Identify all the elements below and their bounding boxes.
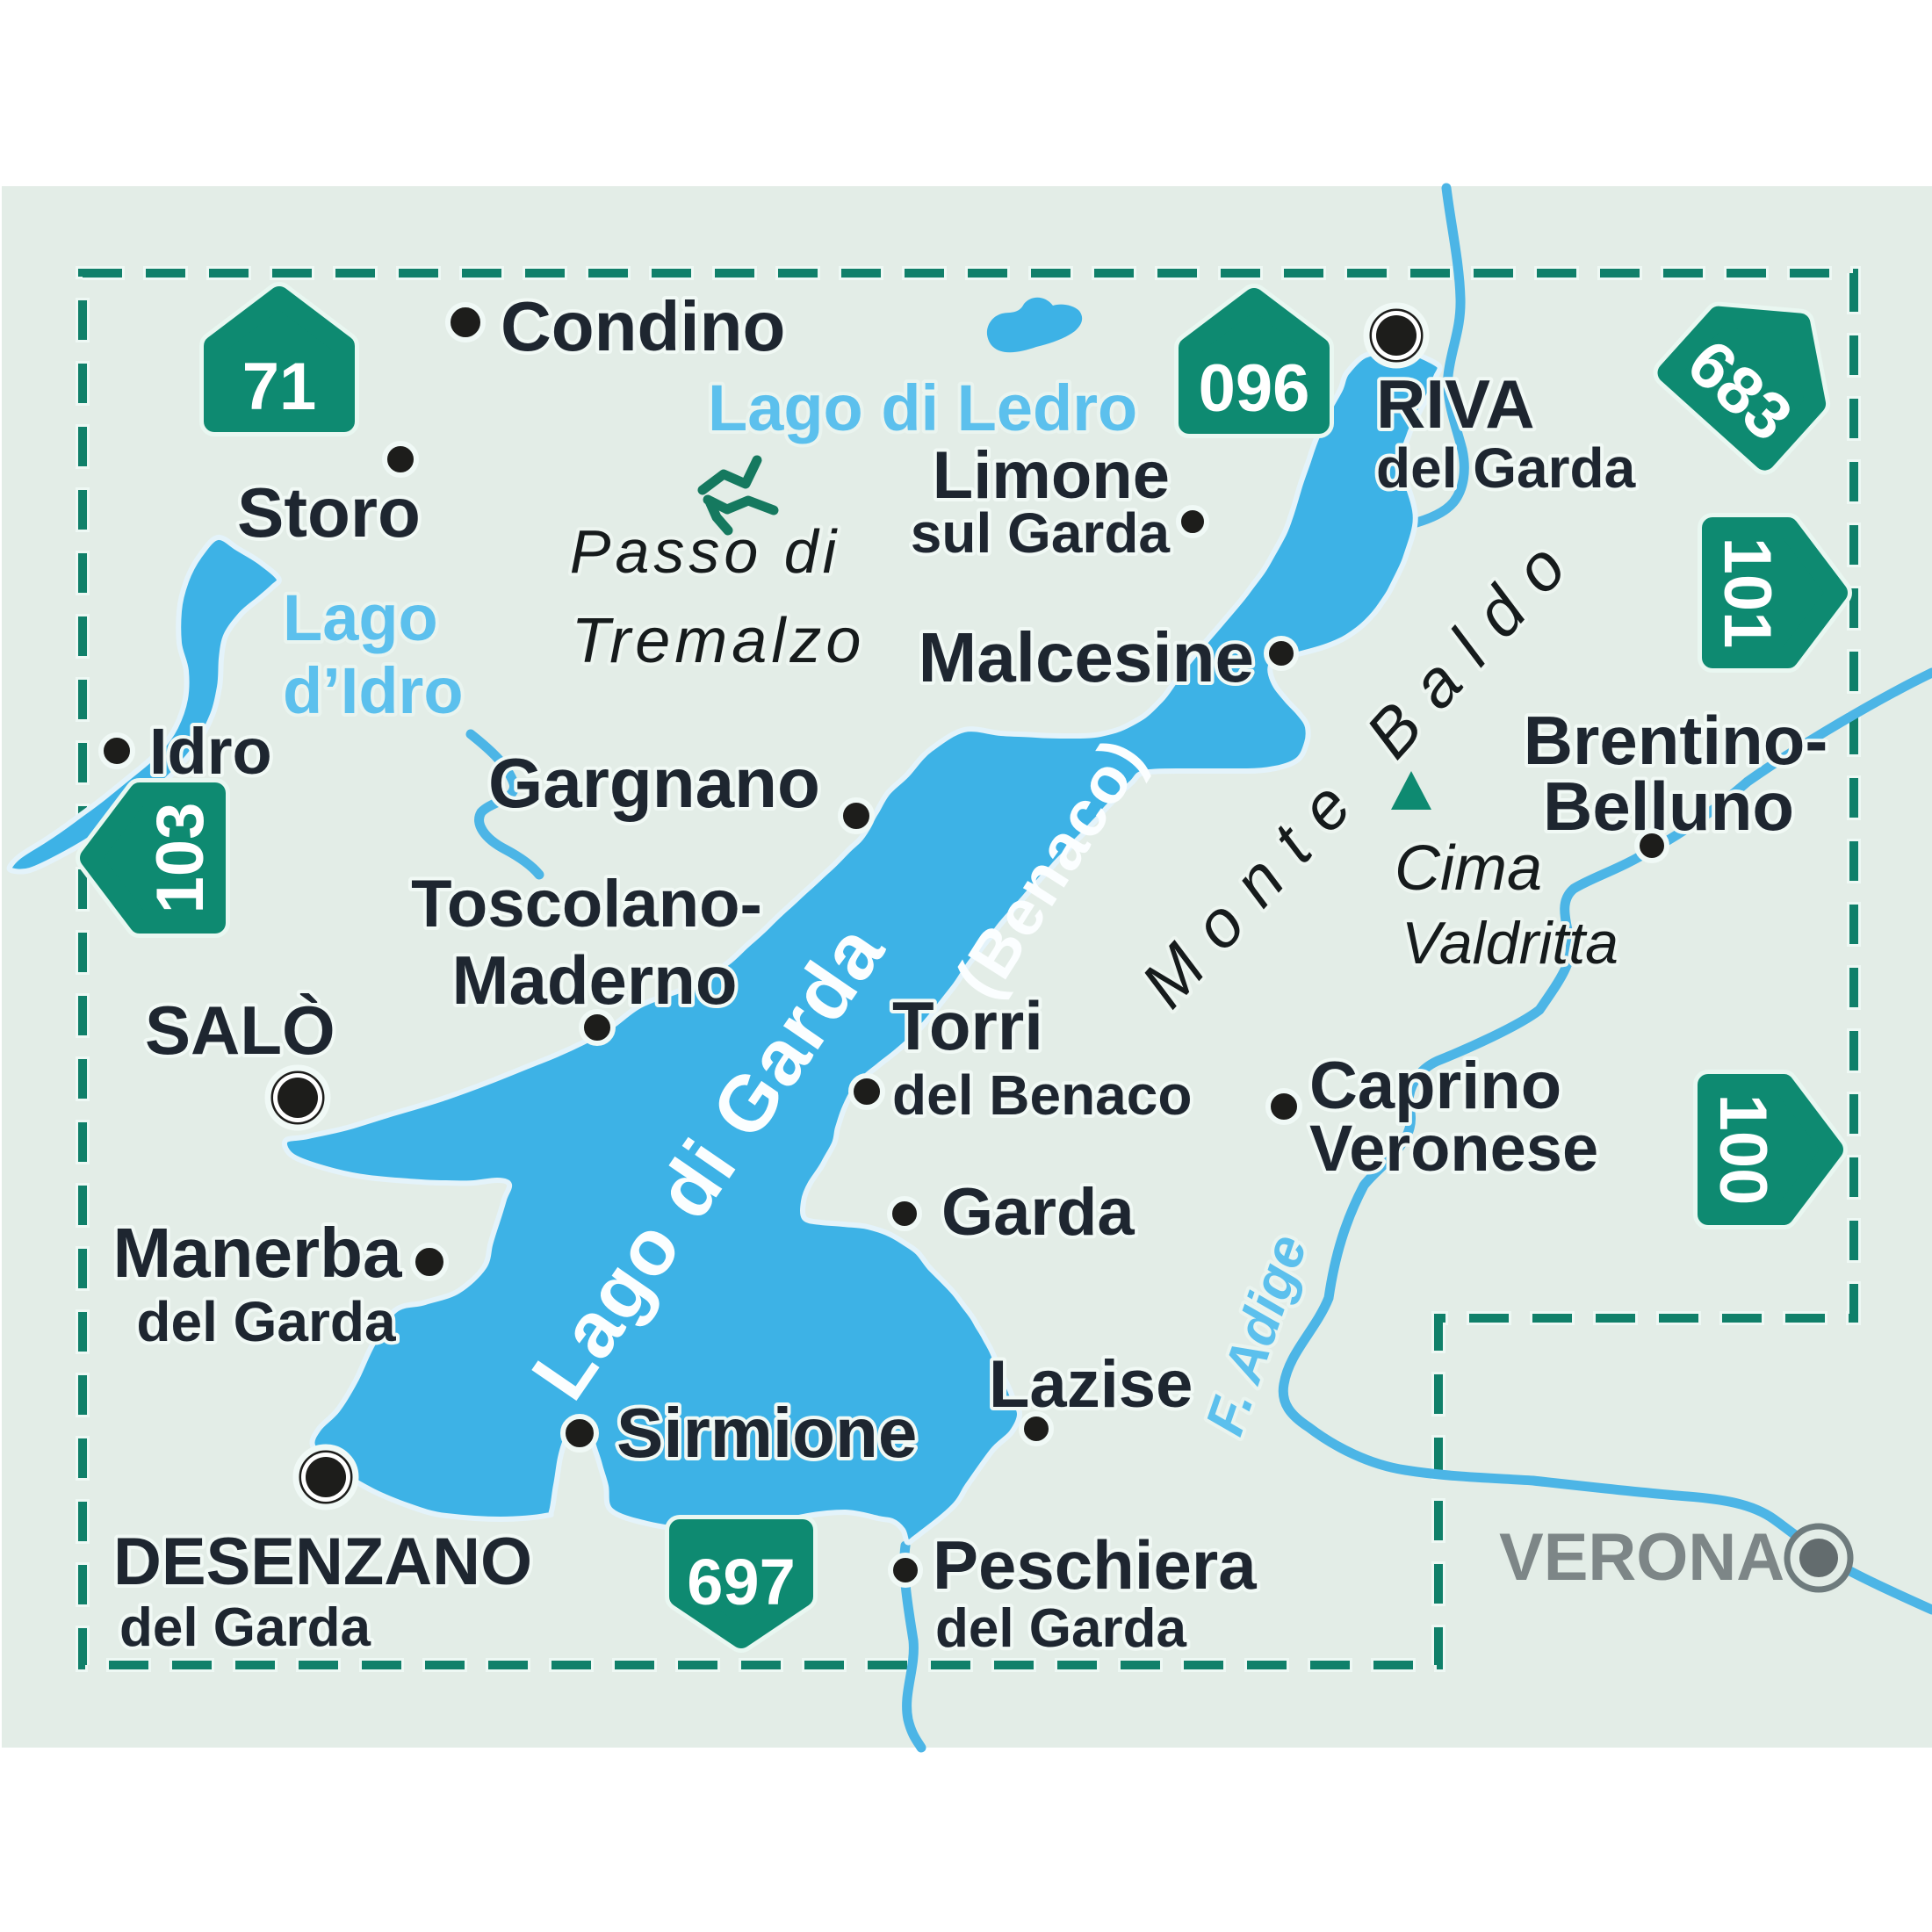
svg-text:100: 100	[1705, 1094, 1780, 1206]
svg-text:Storo: Storo	[237, 473, 421, 551]
svg-text:Peschiera: Peschiera	[933, 1526, 1257, 1604]
svg-text:Veronese: Veronese	[1309, 1112, 1598, 1185]
svg-text:DESENZANO: DESENZANO	[113, 1525, 532, 1599]
svg-text:Belluno: Belluno	[1543, 768, 1794, 845]
svg-text:del Garda: del Garda	[935, 1598, 1187, 1659]
svg-text:Passo di: Passo di	[570, 517, 840, 586]
svg-text:096: 096	[1199, 351, 1310, 426]
svg-text:del Garda: del Garda	[119, 1597, 371, 1658]
svg-text:Manerba: Manerba	[113, 1214, 402, 1292]
svg-text:71: 71	[242, 350, 317, 424]
svg-text:Tremalzo: Tremalzo	[572, 606, 866, 676]
svg-text:Sirmione: Sirmione	[616, 1394, 917, 1472]
svg-text:del Garda: del Garda	[136, 1290, 396, 1353]
svg-text:697: 697	[687, 1546, 795, 1618]
svg-text:Valdritta: Valdritta	[1402, 910, 1618, 977]
svg-text:103: 103	[143, 803, 218, 914]
svg-text:del Garda: del Garda	[1376, 436, 1636, 500]
svg-text:RIVA: RIVA	[1376, 365, 1535, 443]
svg-text:Toscolano-: Toscolano-	[411, 867, 762, 941]
svg-text:VERONA: VERONA	[1499, 1520, 1784, 1595]
svg-text:Maderno: Maderno	[451, 941, 737, 1019]
svg-text:Torri: Torri	[892, 987, 1043, 1064]
svg-text:SALÒ: SALÒ	[145, 991, 335, 1069]
svg-text:Condino: Condino	[501, 287, 785, 365]
svg-text:101: 101	[1710, 537, 1784, 649]
svg-text:Lago di Ledro: Lago di Ledro	[708, 371, 1137, 444]
svg-text:Garda: Garda	[941, 1175, 1135, 1250]
svg-text:Lago: Lago	[283, 581, 438, 654]
svg-text:d’Idro: d’Idro	[283, 654, 464, 727]
svg-text:Malcesine: Malcesine	[919, 618, 1254, 696]
svg-text:sul Garda: sul Garda	[911, 501, 1171, 565]
svg-text:del Benaco: del Benaco	[892, 1063, 1192, 1127]
svg-text:Gargnano: Gargnano	[488, 744, 820, 822]
svg-text:Lazise: Lazise	[989, 1347, 1193, 1422]
svg-text:Idro: Idro	[149, 715, 272, 788]
svg-text:Cima: Cima	[1395, 833, 1542, 904]
